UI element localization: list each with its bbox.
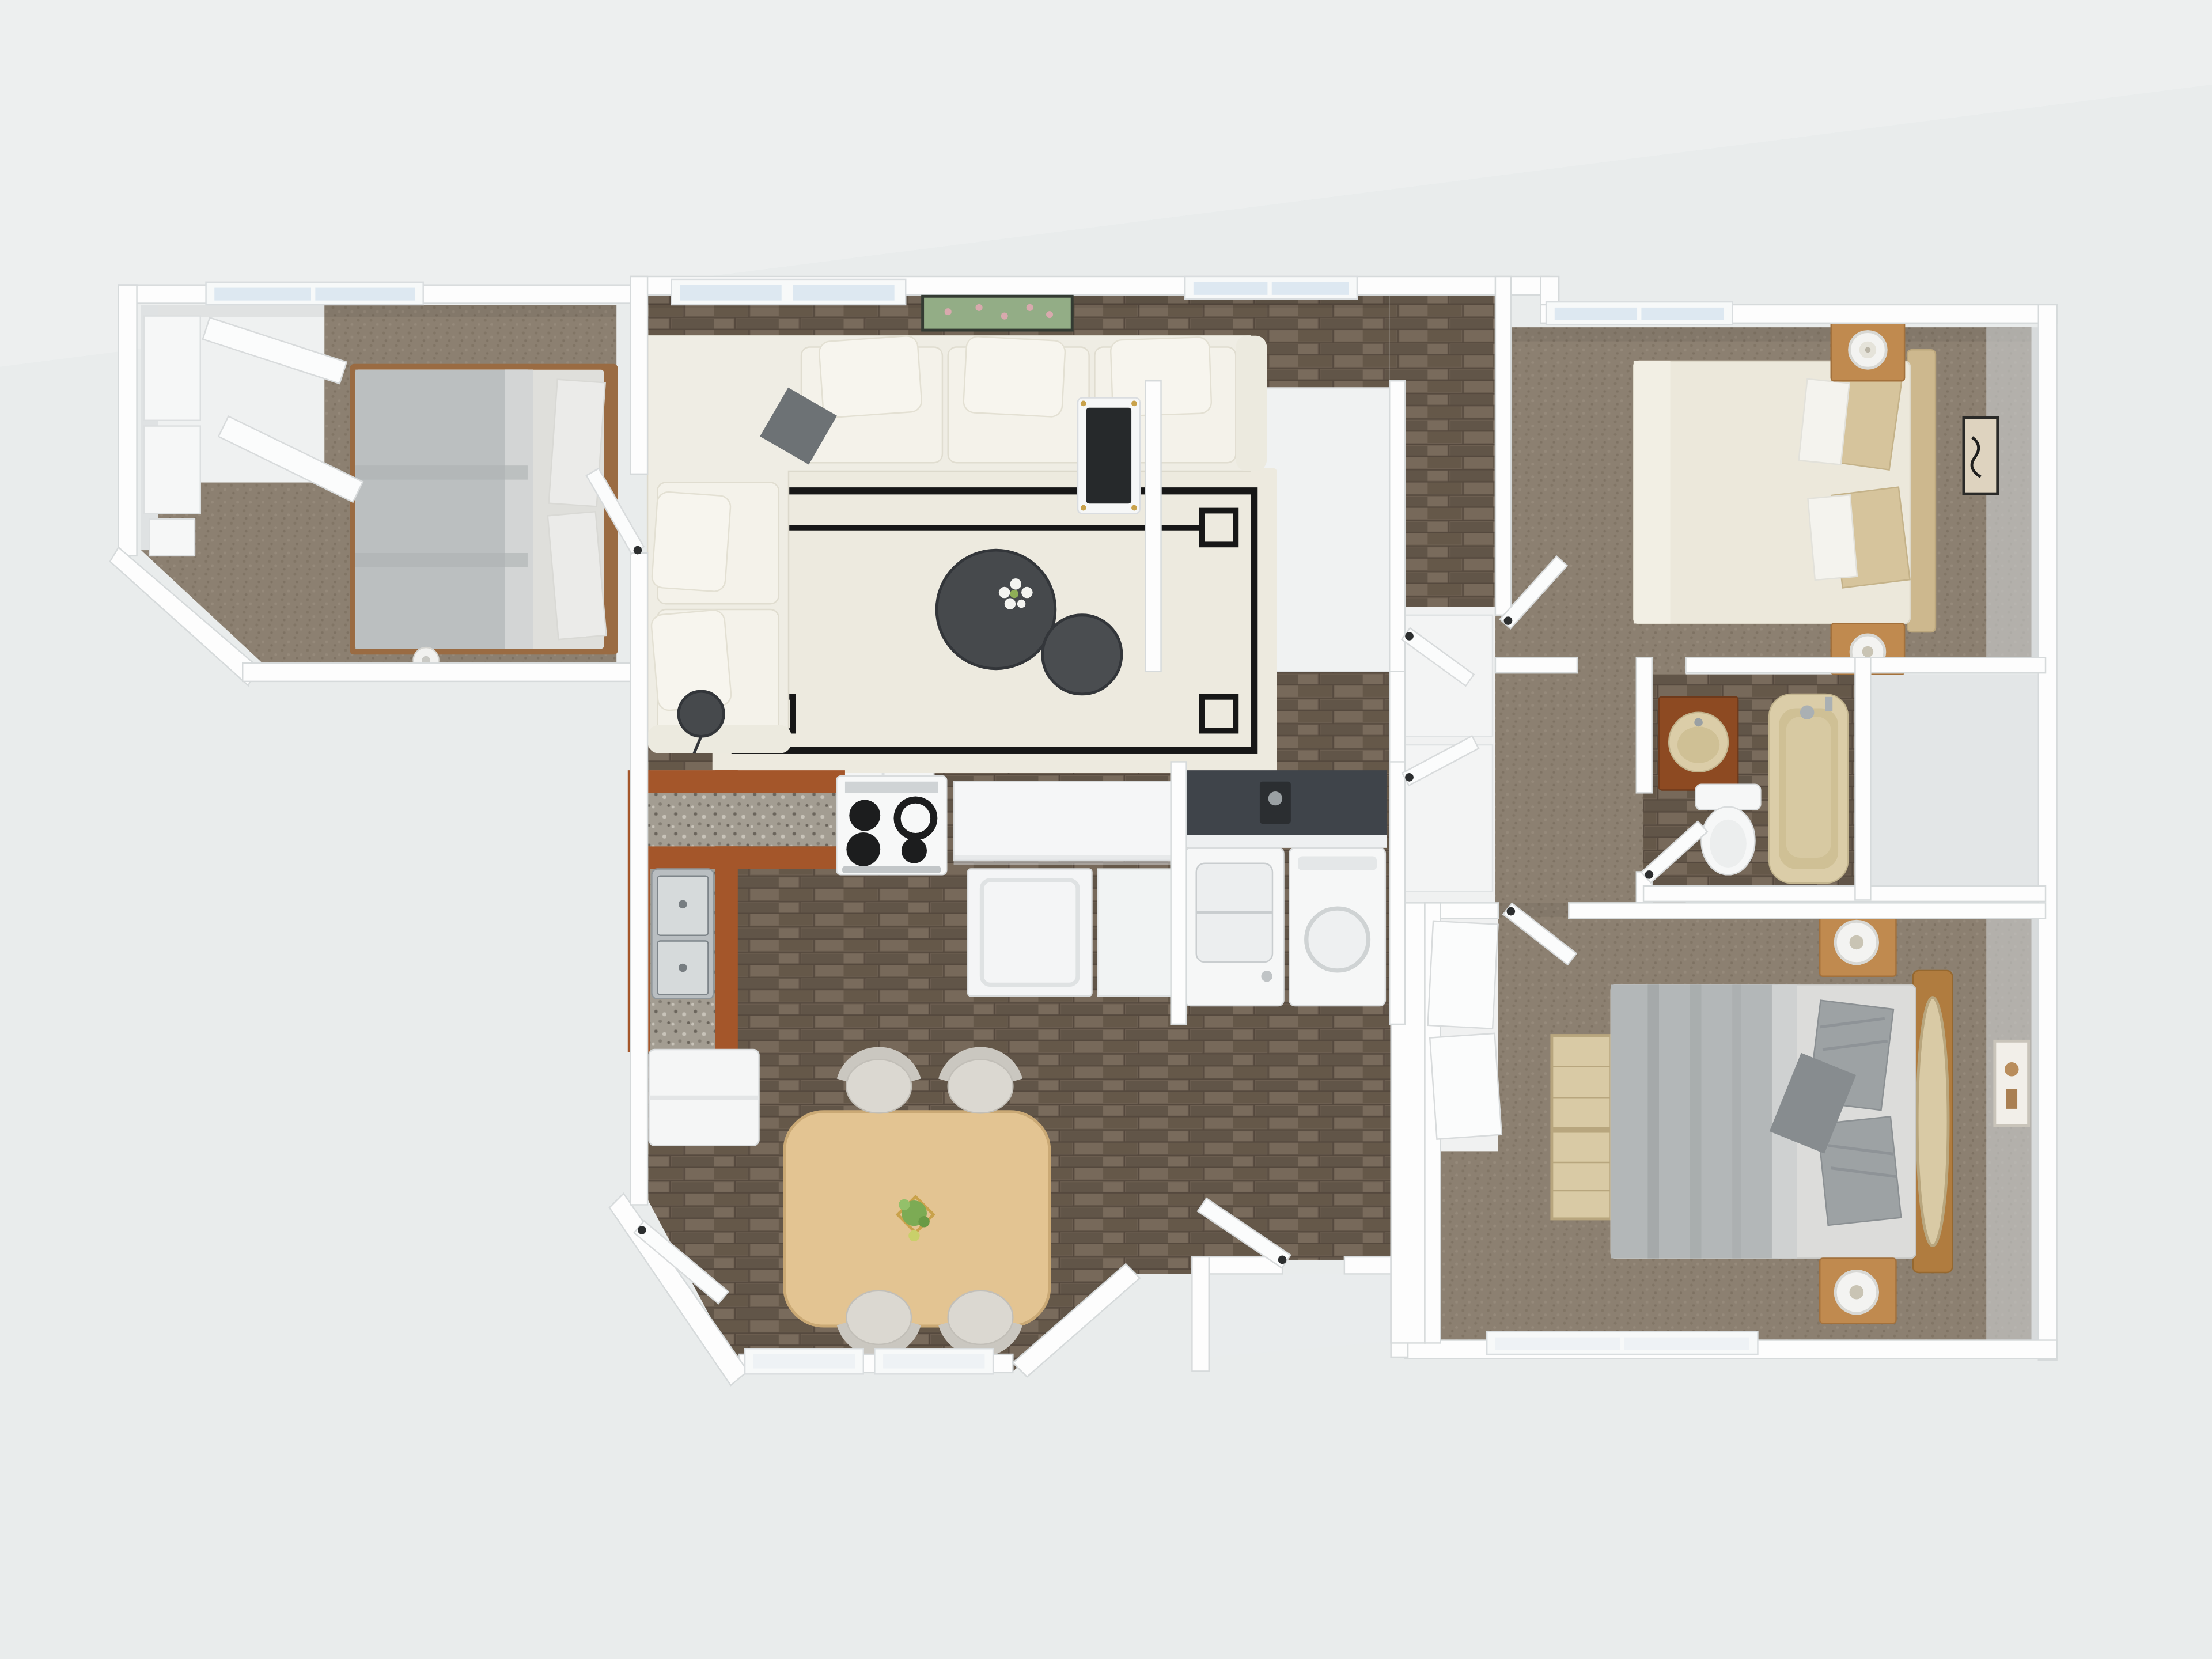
bedroom2-wall-art bbox=[1964, 418, 1998, 494]
wall-right-outer bbox=[2039, 305, 2057, 1360]
wall-bath-left-a bbox=[1637, 657, 1652, 793]
kitchen-peninsula bbox=[954, 782, 1177, 996]
wall-entry-left bbox=[1192, 1257, 1209, 1371]
wall-left-main-a bbox=[631, 276, 647, 474]
window-dining-a bbox=[745, 1349, 863, 1374]
window-bedroom1 bbox=[206, 282, 423, 305]
master-bench bbox=[1552, 1036, 1611, 1219]
window-master bbox=[1487, 1332, 1758, 1354]
laundry-counter bbox=[1175, 770, 1387, 848]
wall-laundry-right bbox=[1389, 762, 1405, 1024]
bedroom2-nightstand-top bbox=[1831, 319, 1904, 381]
wall-laundry-left bbox=[1171, 762, 1187, 1024]
bathroom-vanity bbox=[1659, 697, 1738, 790]
wall-utility-right bbox=[1389, 381, 1405, 671]
master-bed bbox=[1611, 971, 1953, 1272]
floor-plan-page bbox=[0, 0, 2212, 1659]
kitchen-fridge bbox=[649, 1050, 759, 1146]
laundry-washer bbox=[1185, 848, 1283, 1006]
wall-bath-right bbox=[1855, 657, 1870, 900]
floor-plan-3d-render bbox=[0, 0, 2212, 1659]
window-dining-b bbox=[874, 1349, 993, 1374]
wall-leftwing-bottom bbox=[243, 663, 630, 681]
bedroom1-bed bbox=[350, 364, 618, 654]
bathroom-tub bbox=[1769, 694, 1848, 883]
wall-living-right bbox=[1146, 381, 1161, 671]
laundry-dryer bbox=[1289, 848, 1385, 1006]
wall-bedroom2-bottom-a bbox=[1495, 657, 1577, 673]
wall-left-main-b bbox=[631, 553, 647, 1205]
bedroom2-bed bbox=[1634, 350, 1935, 632]
bedroom1-wardrobe bbox=[144, 316, 200, 556]
master-wall-art bbox=[1995, 1041, 2029, 1126]
living-tv-console bbox=[1078, 398, 1140, 514]
kitchen-range bbox=[836, 776, 946, 874]
living-wall-art bbox=[923, 296, 1073, 330]
wall-hallstrip-right bbox=[1495, 276, 1511, 615]
wall-bath-bottom bbox=[1643, 886, 2046, 902]
window-living bbox=[1185, 276, 1357, 299]
window-entry-sliders bbox=[672, 279, 906, 305]
wall-master-top-b bbox=[1569, 903, 2046, 918]
master-nightstand-bottom bbox=[1820, 1258, 1896, 1323]
master-nightstand-top bbox=[1820, 911, 1896, 976]
window-bedroom2 bbox=[1546, 302, 1732, 324]
wall-leftwing-left bbox=[119, 285, 137, 556]
kitchen-double-sink bbox=[652, 869, 714, 999]
